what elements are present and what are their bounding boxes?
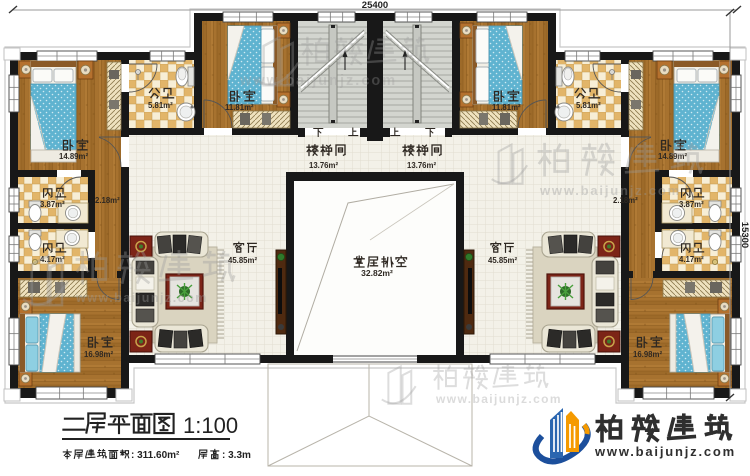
svg-text:1:100: 1:100 <box>183 413 238 438</box>
svg-text:16.98m²: 16.98m² <box>84 350 113 359</box>
svg-text:2.18m²: 2.18m² <box>95 196 120 205</box>
svg-text:32.82m²: 32.82m² <box>361 268 393 278</box>
svg-text:13.76m²: 13.76m² <box>407 161 436 170</box>
svg-text:16.98m²: 16.98m² <box>633 350 662 359</box>
svg-text:5.81m²: 5.81m² <box>148 101 173 110</box>
svg-text:11.81m²: 11.81m² <box>492 103 521 112</box>
svg-text:13.76m²: 13.76m² <box>309 161 338 170</box>
svg-text:3.87m²: 3.87m² <box>679 200 704 209</box>
svg-text:15300: 15300 <box>739 222 750 248</box>
svg-text:4.17m²: 4.17m² <box>679 255 704 264</box>
svg-text:45.85m²: 45.85m² <box>488 256 517 265</box>
svg-text:www.baijunjz.com: www.baijunjz.com <box>75 291 208 305</box>
svg-text:www.baijunjz.com: www.baijunjz.com <box>539 183 681 198</box>
svg-text:11.81m²: 11.81m² <box>225 103 254 112</box>
svg-text:3.87m²: 3.87m² <box>40 200 65 209</box>
svg-text:5.81m²: 5.81m² <box>576 101 601 110</box>
svg-text:www.baijunjz.com: www.baijunjz.com <box>594 444 736 459</box>
svg-text:45.85m²: 45.85m² <box>228 256 257 265</box>
svg-text:14.89m²: 14.89m² <box>59 152 88 161</box>
svg-text:www.baijunjz.com: www.baijunjz.com <box>239 73 397 89</box>
svg-text:25400: 25400 <box>362 0 388 11</box>
svg-text:www.baijunjz.com: www.baijunjz.com <box>435 392 562 406</box>
svg-text:: 311.60m²: : 311.60m² <box>131 450 180 461</box>
svg-text:: 3.3m: : 3.3m <box>222 450 251 461</box>
